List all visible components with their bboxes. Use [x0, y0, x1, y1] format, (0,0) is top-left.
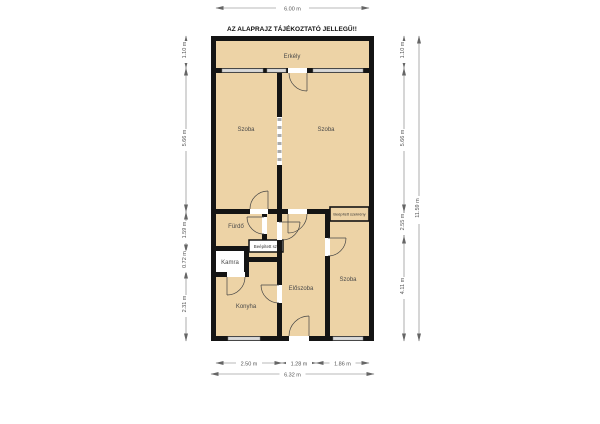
wall-right [369, 36, 374, 341]
room-label-kamra: Kamra [221, 260, 239, 266]
entrance-door-opening [289, 336, 309, 341]
floor-plan-page: AZ ALAPRAJZ TÁJÉKOZTATÓ JELLEGŰ!! [0, 0, 600, 424]
plan-title: AZ ALAPRAJZ TÁJÉKOZTATÓ JELLEGŰ!! [227, 24, 357, 33]
room-label-beepitett-szekreny: Beépített szekrény [333, 212, 365, 217]
dim-right-total-label: 11.59 m [415, 198, 421, 218]
room-label-szoba-top-left: Szoba [237, 127, 255, 133]
dim-left-1-label: 5.66 m [182, 129, 188, 146]
door-opening [277, 222, 282, 240]
window-icon [267, 69, 286, 72]
sliding-door-opening [277, 117, 282, 165]
room-label-konyha: Konyha [236, 304, 257, 310]
wall-segment [277, 73, 282, 117]
window-icon [222, 69, 263, 72]
door-opening [262, 217, 267, 234]
wall-segment [244, 251, 249, 272]
dim-left-2-label: 1.59 m [182, 221, 188, 238]
dim-right-2-label: 2.55 m [400, 213, 406, 230]
room-label-erkely: Erkély [284, 54, 301, 60]
room-label-furdo: Fürdő [228, 224, 244, 230]
wall-left [211, 36, 216, 341]
wall-top [211, 36, 374, 41]
dim-right-1-label: 5.66 m [400, 129, 406, 146]
dim-right-0-label: 1.10 m [400, 41, 406, 58]
floor-plan: AZ ALAPRAJZ TÁJÉKOZTATÓ JELLEGŰ!! [0, 0, 600, 424]
dim-left-4-label: 2.31 m [182, 295, 188, 312]
top-rooms-divider [277, 73, 282, 209]
room-label-beepitett-sz: Beépített sz. [254, 244, 278, 249]
window-icon [313, 69, 363, 72]
door-opening [325, 238, 330, 256]
door-opening [250, 209, 268, 214]
room-label-szoba-top-right: Szoba [317, 127, 335, 133]
dim-left-0-label: 1.10 m [182, 41, 188, 58]
dim-right-3-label: 4.11 m [400, 277, 406, 294]
dim-left-3-label: 0.72 m [182, 251, 188, 268]
door-opening [227, 272, 245, 277]
dim-top-label: 6.00 m [284, 7, 301, 13]
door-opening [277, 285, 282, 303]
door-opening [288, 68, 307, 73]
room-label-szoba-bottom: Szoba [339, 277, 357, 283]
wall-segment [325, 256, 330, 336]
room-label-eloszoba: Előszoba [289, 286, 314, 292]
dim-bottom-total-label: 6.32 m [284, 373, 301, 379]
door-opening [288, 209, 307, 214]
window-icon [228, 337, 260, 340]
wall-segment [277, 165, 282, 209]
window-icon [333, 337, 363, 340]
dim-bottom-0-label: 2.50 m [241, 362, 258, 368]
wall-segment [277, 303, 282, 336]
dim-bottom-2-label: 1.86 m [334, 362, 351, 368]
dim-bottom-1-label: 1.28 m [291, 362, 308, 368]
wall-segment [277, 214, 282, 222]
